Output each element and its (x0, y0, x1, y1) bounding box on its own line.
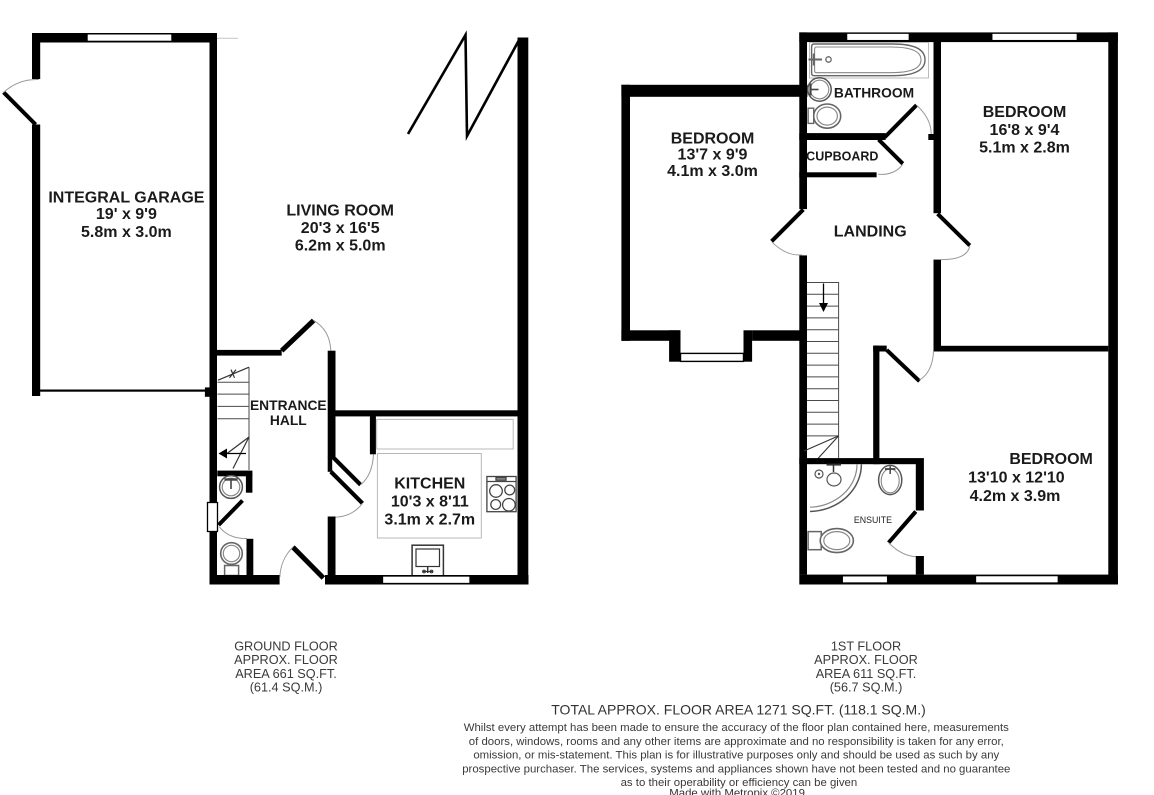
svg-text:APPROX. FLOOR: APPROX. FLOOR (814, 653, 918, 667)
svg-text:BATHROOM: BATHROOM (834, 86, 914, 101)
svg-text:of doors, windows, rooms and a: of doors, windows, rooms and any other i… (469, 736, 1004, 748)
svg-text:Made with Metropix ©2019: Made with Metropix ©2019 (669, 787, 805, 795)
svg-text:ENSUITE: ENSUITE (854, 515, 892, 525)
svg-text:GROUND FLOOR: GROUND FLOOR (234, 640, 338, 654)
svg-text:4.2m x 3.9m: 4.2m x 3.9m (970, 488, 1061, 505)
svg-text:INTEGRAL GARAGE: INTEGRAL GARAGE (48, 190, 204, 207)
svg-text:13'7 x 9'9: 13'7 x 9'9 (678, 147, 748, 164)
svg-text:5.8m x 3.0m: 5.8m x 3.0m (81, 224, 172, 241)
svg-text:Whilst every attempt has been: Whilst every attempt has been made to en… (464, 722, 1009, 734)
svg-text:6.2m x 5.0m: 6.2m x 5.0m (295, 237, 386, 254)
svg-text:13'10 x 12'10: 13'10 x 12'10 (968, 470, 1065, 487)
svg-text:BEDROOM: BEDROOM (1009, 451, 1093, 468)
svg-text:(56.7 SQ.M.): (56.7 SQ.M.) (830, 681, 903, 695)
svg-text:APPROX. FLOOR: APPROX. FLOOR (234, 653, 338, 667)
svg-text:5.1m x 2.8m: 5.1m x 2.8m (979, 140, 1070, 157)
svg-text:3.1m x 2.7m: 3.1m x 2.7m (384, 512, 475, 529)
svg-text:19' x 9'9: 19' x 9'9 (96, 206, 157, 223)
svg-text:1ST FLOOR: 1ST FLOOR (831, 640, 901, 654)
svg-text:CUPBOARD: CUPBOARD (806, 149, 878, 163)
svg-text:LIVING ROOM: LIVING ROOM (286, 202, 394, 219)
svg-text:BEDROOM: BEDROOM (983, 104, 1067, 121)
svg-text:AREA 661 SQ.FT.: AREA 661 SQ.FT. (235, 667, 337, 681)
svg-text:(61.4 SQ.M.): (61.4 SQ.M.) (250, 681, 323, 695)
svg-text:16'8 x 9'4: 16'8 x 9'4 (990, 122, 1060, 139)
svg-text:omission, or mis-statement. Th: omission, or mis-statement. This plan is… (473, 750, 999, 762)
svg-text:4.1m x 3.0m: 4.1m x 3.0m (667, 163, 758, 180)
svg-text:KITCHEN: KITCHEN (394, 475, 465, 492)
svg-text:10'3 x 8'11: 10'3 x 8'11 (391, 494, 469, 511)
svg-text:AREA 611 SQ.FT.: AREA 611 SQ.FT. (816, 667, 917, 681)
svg-text:20'3 x 16'5: 20'3 x 16'5 (301, 220, 380, 237)
svg-text:HALL: HALL (270, 413, 307, 428)
svg-text:prospective purchaser. The ser: prospective purchaser. The services, sys… (462, 763, 1010, 775)
svg-text:ENTRANCE: ENTRANCE (250, 398, 327, 413)
svg-text:BEDROOM: BEDROOM (671, 131, 755, 148)
svg-text:TOTAL APPROX. FLOOR AREA 1271: TOTAL APPROX. FLOOR AREA 1271 SQ.FT. (11… (551, 702, 926, 718)
svg-text:LANDING: LANDING (834, 224, 907, 241)
